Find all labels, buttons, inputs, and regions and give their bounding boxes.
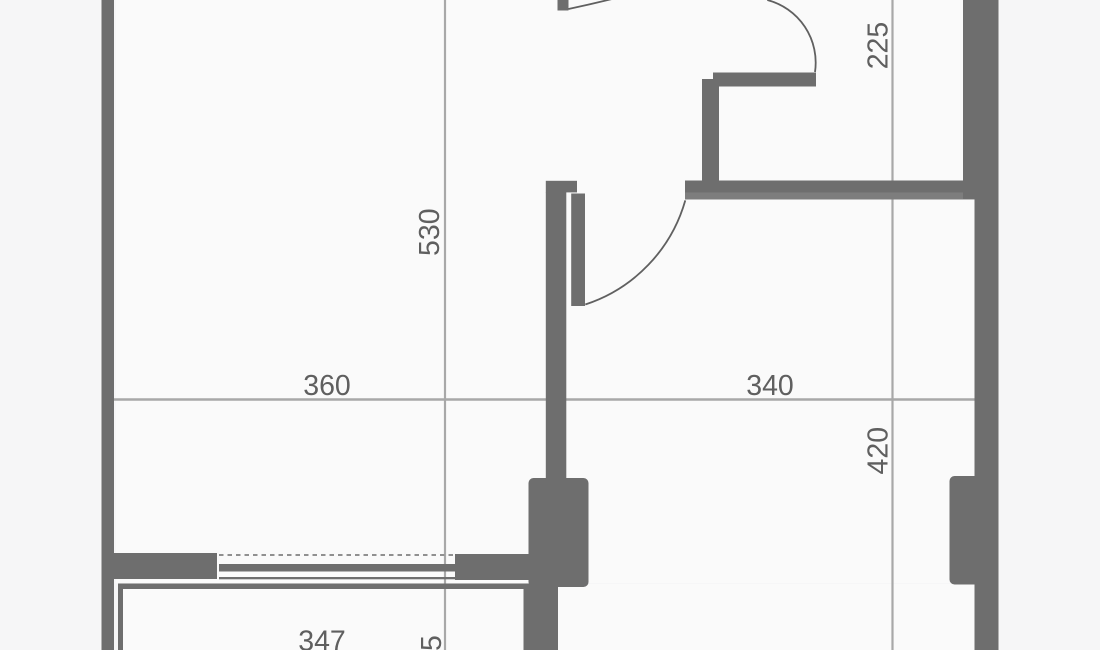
svg-text:530: 530 bbox=[414, 208, 446, 256]
svg-text:340: 340 bbox=[746, 370, 794, 402]
svg-text:5: 5 bbox=[416, 635, 448, 650]
svg-text:347: 347 bbox=[298, 626, 346, 650]
svg-text:420: 420 bbox=[862, 427, 894, 475]
svg-text:360: 360 bbox=[303, 370, 351, 402]
svg-text:225: 225 bbox=[862, 22, 894, 70]
